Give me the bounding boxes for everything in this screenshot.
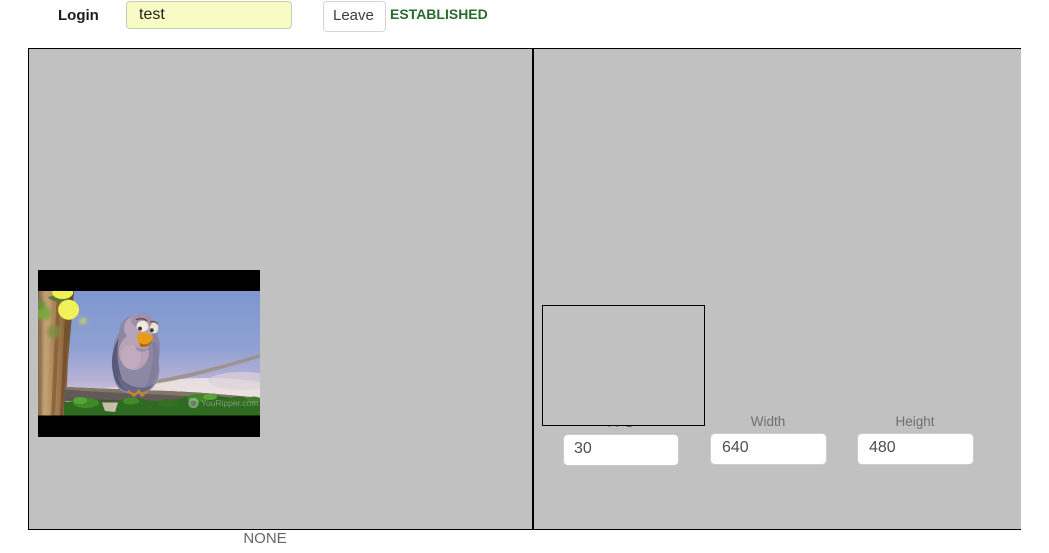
svg-text:YouRipper.com: YouRipper.com xyxy=(201,398,258,408)
